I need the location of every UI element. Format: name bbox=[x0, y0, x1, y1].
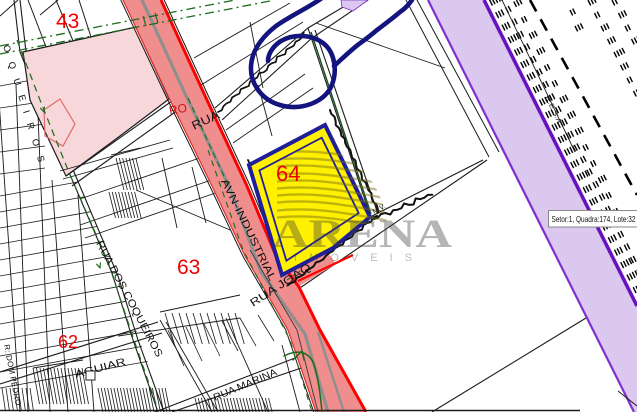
svg-text:Setor:1, Quadra:174, Lote:32: Setor:1, Quadra:174, Lote:32 bbox=[552, 214, 636, 224]
svg-text:43: 43 bbox=[56, 10, 79, 33]
svg-text:62: 62 bbox=[58, 332, 78, 352]
svg-text:63: 63 bbox=[177, 256, 200, 279]
svg-text:ARENA: ARENA bbox=[272, 211, 452, 256]
svg-text:64: 64 bbox=[276, 161, 300, 186]
